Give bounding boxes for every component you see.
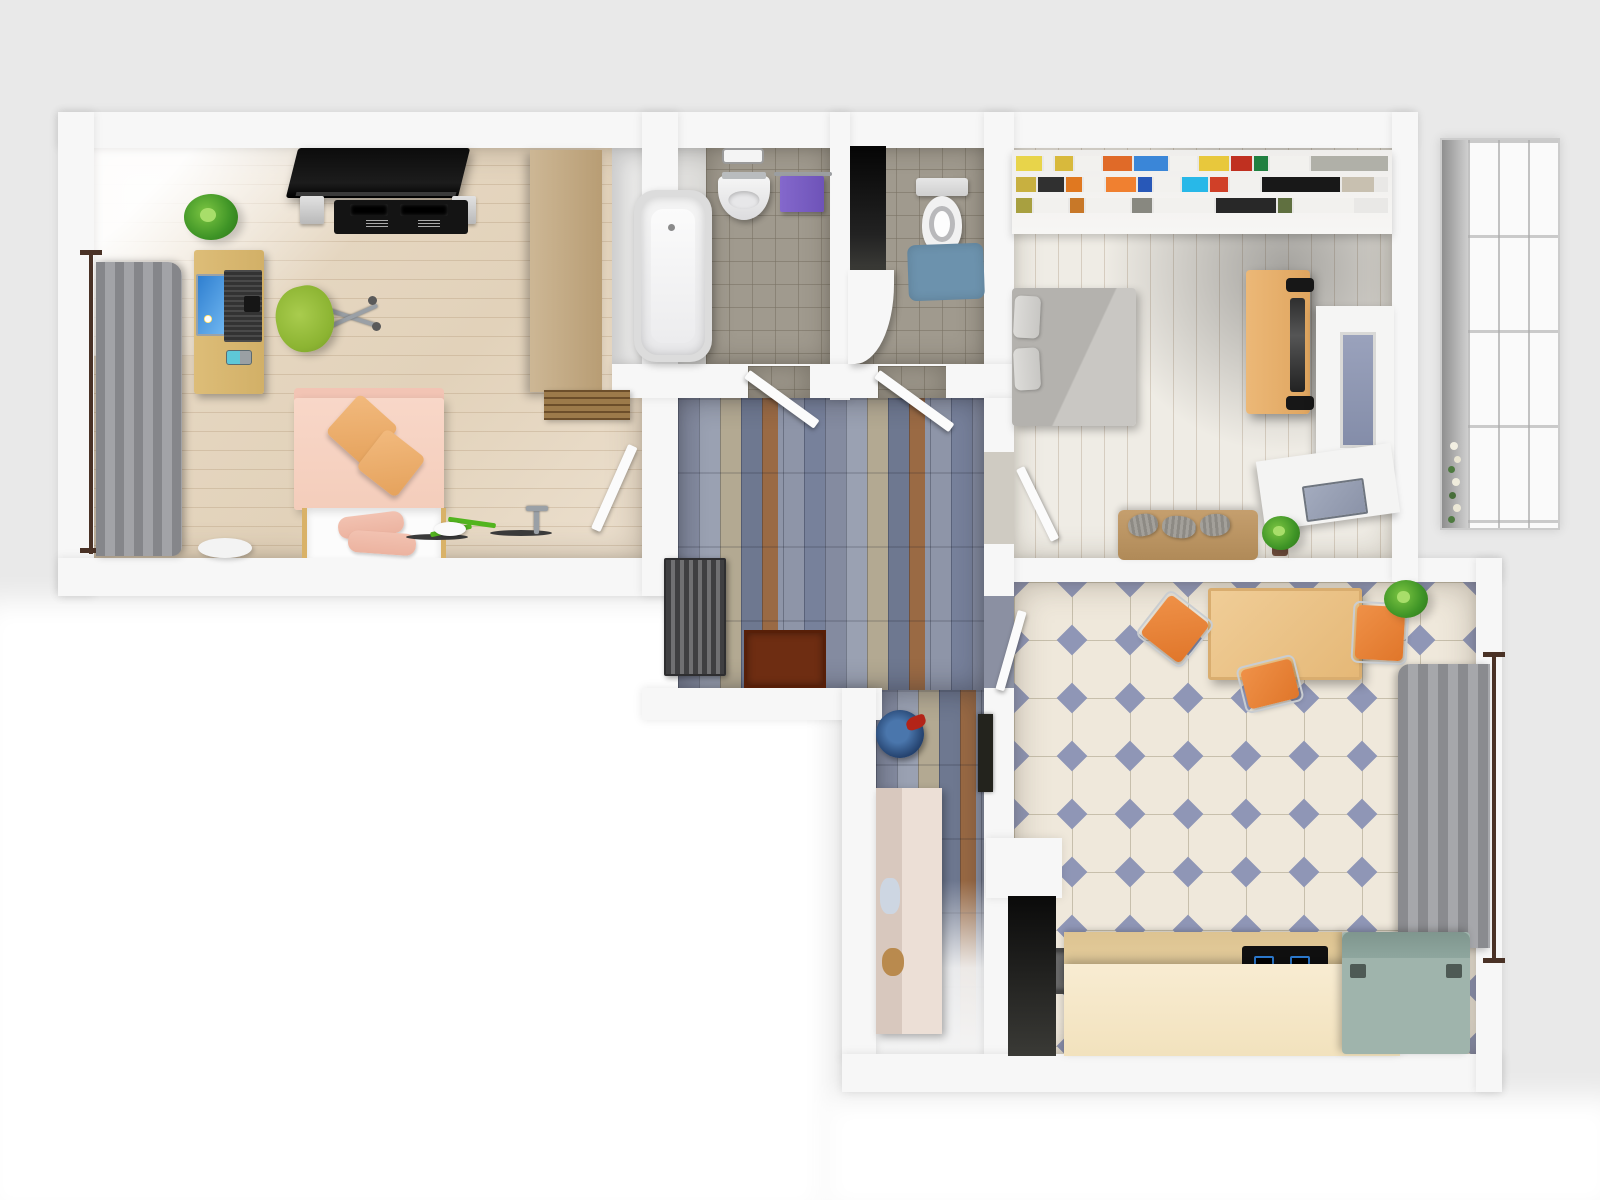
book-spine [1066, 177, 1082, 192]
monitor [196, 274, 226, 336]
kitchen-niche-doorway [1008, 896, 1056, 1056]
book-spine [1134, 156, 1167, 171]
book-spine [1210, 177, 1228, 192]
book-spine [1342, 177, 1374, 192]
flower [1452, 478, 1460, 486]
teddy-bear [882, 948, 904, 976]
leaf [1448, 466, 1455, 473]
book-spine [1270, 156, 1309, 171]
duct-shaft [850, 146, 886, 272]
book-spine [1154, 177, 1180, 192]
curtain-rod-finial [1483, 958, 1505, 963]
desk-chair-armrest [1286, 396, 1314, 410]
toilet-tank [916, 178, 968, 196]
book-spine [1182, 177, 1208, 192]
book-spine [1254, 156, 1268, 171]
pink-pillow [347, 530, 416, 557]
bicycle-handlebar [526, 506, 548, 511]
wall-bedroom-bottom [1012, 558, 1502, 582]
phone [226, 350, 252, 365]
book-spine [1311, 156, 1388, 171]
book-spine [1070, 198, 1084, 213]
wall-bath-wc-divider [830, 112, 850, 400]
flower [1453, 504, 1461, 512]
book-spine [1262, 177, 1340, 192]
leaf [1448, 516, 1455, 523]
book-spine [1199, 156, 1229, 171]
speaker-grille [350, 204, 388, 216]
chest-appliance-lid [1342, 932, 1470, 958]
dining-chair-bottom [1240, 658, 1300, 709]
curtain-rod-left [89, 252, 93, 554]
book-spine [1216, 198, 1276, 213]
wall-top [58, 112, 1414, 148]
book-spine [1034, 198, 1068, 213]
background-glow-bottom [820, 1096, 1600, 1200]
book-spine [1138, 177, 1152, 192]
bed-pillow [1013, 295, 1041, 338]
book-spine [1231, 156, 1253, 171]
bathtub-drain [668, 224, 675, 231]
corridor-mirror [978, 714, 993, 792]
media-console [334, 200, 468, 234]
bathtub [634, 190, 712, 362]
book-spine [1294, 198, 1354, 213]
wall-kitchen-niche [986, 838, 1062, 898]
book-spine [1278, 198, 1292, 213]
chair-wheel [372, 322, 381, 331]
bookshelf-row [1016, 198, 1388, 213]
book-spine [1154, 198, 1214, 213]
console-label [366, 220, 388, 228]
book-spine [1075, 156, 1101, 171]
curtain-rod-right [1492, 654, 1496, 962]
tv-bracket-left [300, 196, 324, 224]
bathtub-interior [641, 197, 705, 355]
bicycle-saddle [434, 522, 466, 536]
living-curtain [96, 262, 182, 556]
appliance-hinge [1446, 964, 1462, 978]
balcony-window [1468, 140, 1558, 528]
curtain-rod-finial [80, 250, 102, 255]
book-spine [1084, 177, 1104, 192]
flower [1450, 442, 1458, 450]
bedroom-plant [1262, 516, 1300, 550]
bookshelf [1012, 150, 1392, 234]
balcony-flowers [1446, 440, 1466, 526]
doormat [744, 630, 826, 688]
bicycle-handlebar [534, 508, 539, 534]
chair-wheel [368, 296, 377, 305]
book-spine [1038, 177, 1064, 192]
book-spine [1016, 177, 1036, 192]
wall-unit-panel [1340, 332, 1376, 448]
book-spine [1103, 156, 1133, 171]
living-plant [184, 194, 238, 240]
curtain-rod-finial [1483, 652, 1505, 657]
flower [1454, 456, 1461, 463]
wall-bath-bottom [612, 364, 1016, 398]
cabinet-towels [880, 878, 900, 914]
bed-pillow [1013, 347, 1041, 390]
bookshelf-row [1016, 156, 1388, 171]
tv-panel [286, 148, 470, 198]
book-spine [1106, 177, 1136, 192]
hallway-radiator [664, 558, 726, 676]
white-stool [198, 538, 252, 558]
wall-bottom [842, 1054, 1502, 1092]
book-spine [1230, 177, 1260, 192]
desk-chair-back [1290, 298, 1305, 392]
kitchen-curtain [1398, 664, 1490, 948]
bookshelf-row [1016, 177, 1388, 192]
desk-chair-armrest [1286, 278, 1314, 292]
book-spine [1170, 156, 1198, 171]
book-spine [1044, 156, 1054, 171]
kitchen-plant [1384, 580, 1428, 618]
bedroom-door-opening [984, 452, 1014, 544]
wall-living-bottom [58, 558, 680, 596]
book-spine [1055, 156, 1073, 171]
purple-towel [780, 176, 824, 212]
wardrobe [530, 150, 602, 392]
wall-corridor-left [842, 688, 876, 1060]
book-spine [1016, 198, 1032, 213]
wall-wc-bedroom-divider [984, 112, 1014, 400]
bookshelf-books [1012, 156, 1392, 213]
leaf [1449, 492, 1456, 499]
book-spine [1132, 198, 1152, 213]
mouse-pad [244, 296, 260, 312]
wc-rug [907, 243, 985, 302]
appliance-hinge [1350, 964, 1366, 978]
step-mat [544, 390, 630, 420]
speaker-grille [400, 204, 448, 216]
bicycle-wheel [490, 530, 552, 536]
book-spine [1016, 156, 1042, 171]
vent-grille [722, 148, 764, 164]
book-spine [1086, 198, 1130, 213]
console-label [418, 220, 440, 228]
floor-plan-render [0, 0, 1600, 1200]
